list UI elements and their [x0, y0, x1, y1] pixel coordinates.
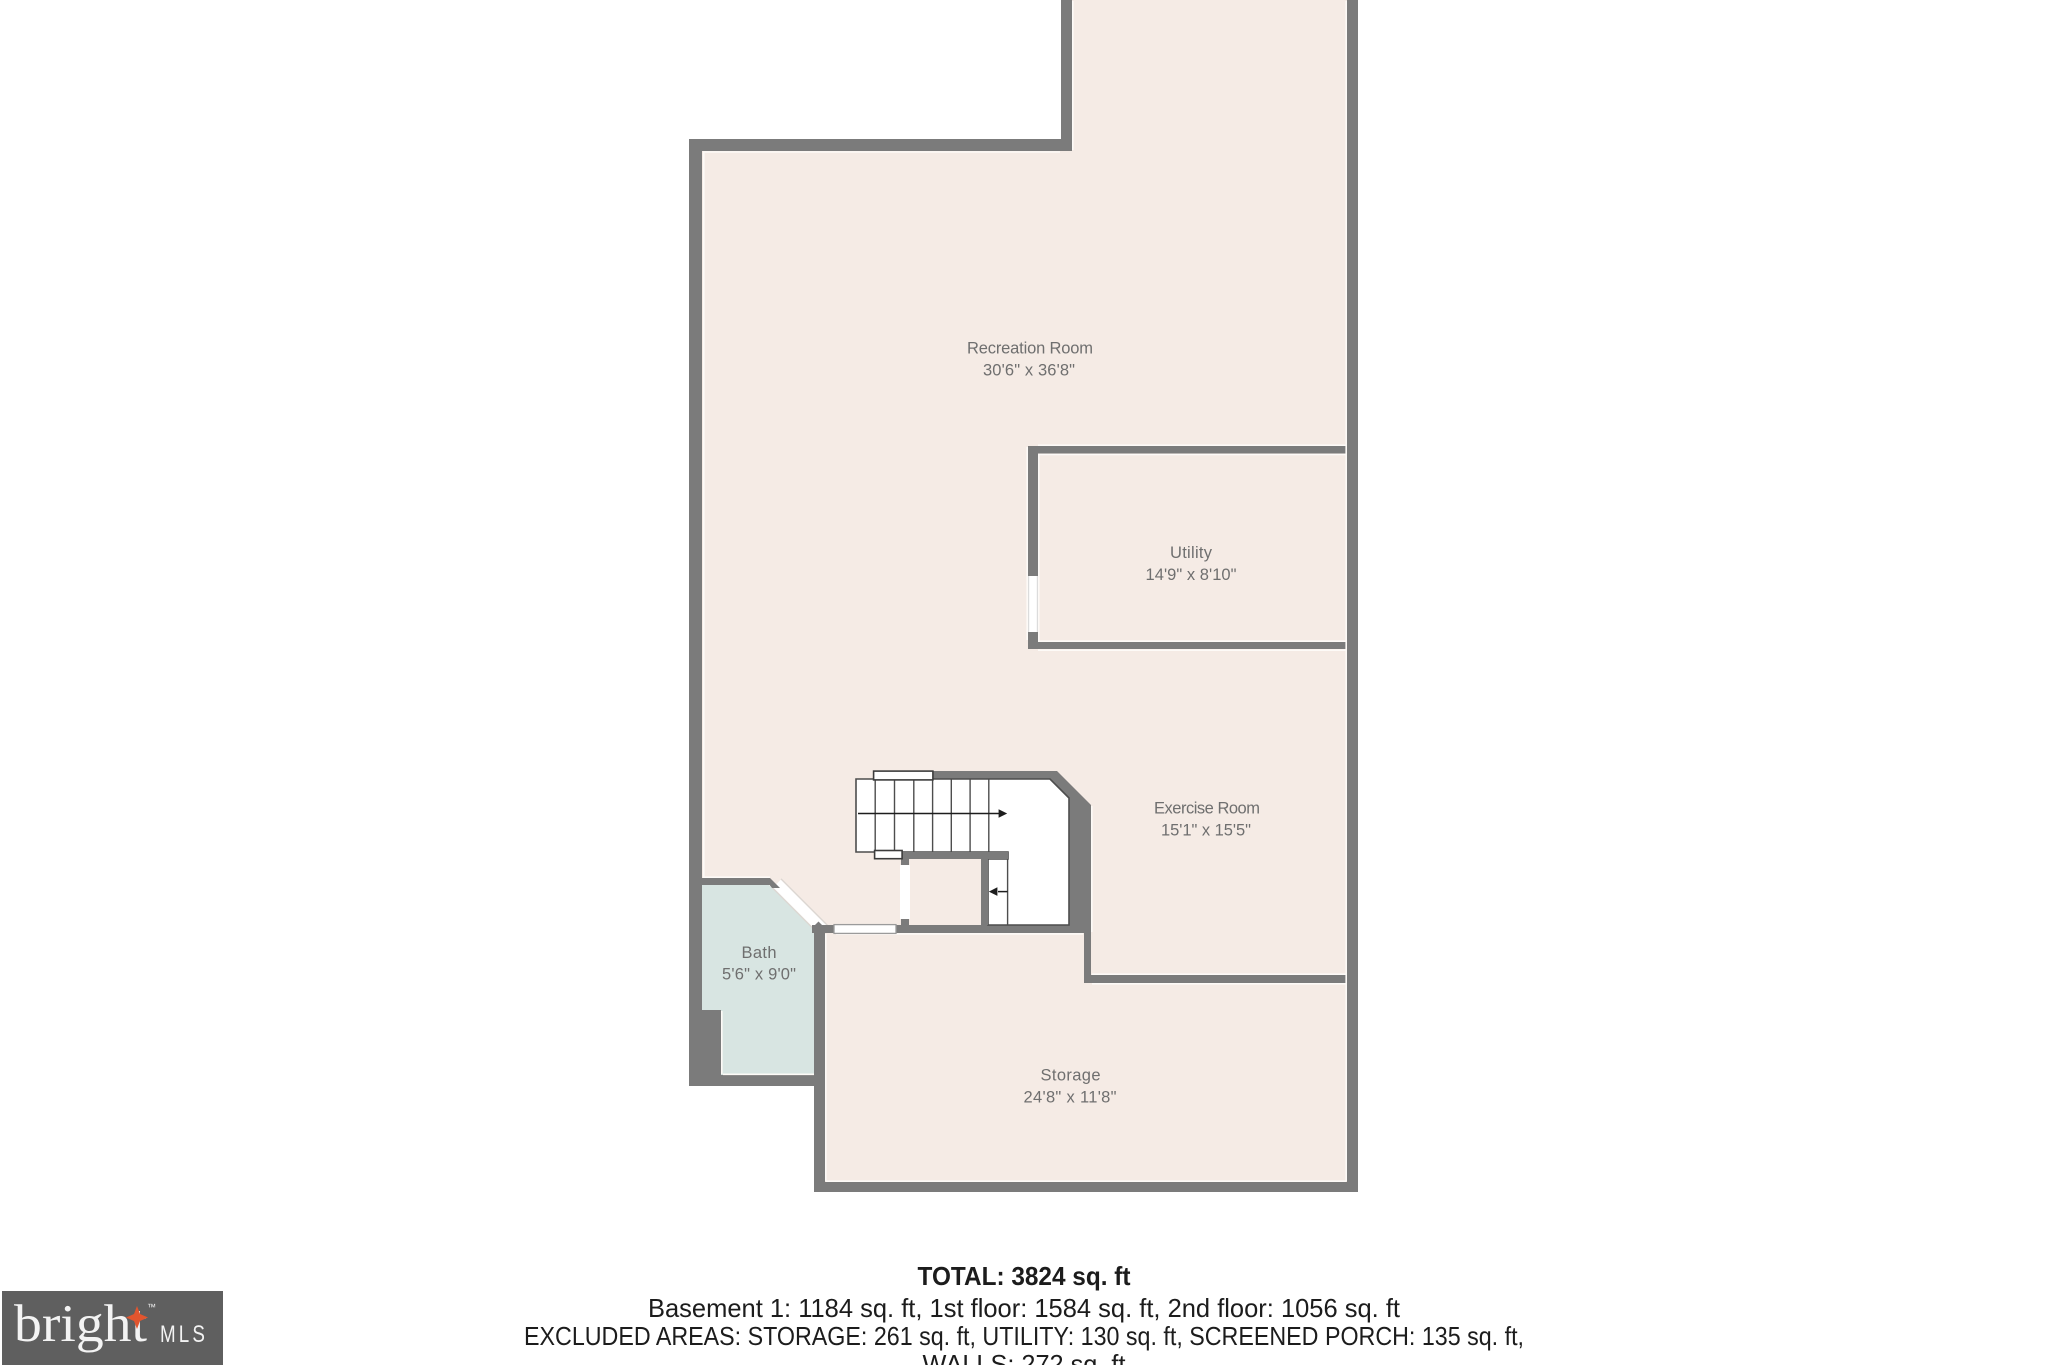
svg-text:™: ™	[147, 1302, 156, 1312]
svg-text:Utility: Utility	[1170, 544, 1213, 562]
svg-text:Recreation Room: Recreation Room	[967, 340, 1093, 358]
svg-text:5'6" x 9'0": 5'6" x 9'0"	[722, 966, 796, 984]
svg-text:30'6" x 36'8": 30'6" x 36'8"	[983, 362, 1075, 380]
svg-text:14'9" x 8'10": 14'9" x 8'10"	[1146, 566, 1237, 584]
svg-text:Basement 1: 1184 sq. ft, 1st f: Basement 1: 1184 sq. ft, 1st floor: 1584…	[648, 1293, 1401, 1323]
svg-text:Exercise Room: Exercise Room	[1154, 799, 1260, 817]
svg-text:TOTAL: 3824 sq. ft: TOTAL: 3824 sq. ft	[918, 1261, 1131, 1291]
svg-text:bright: bright	[14, 1295, 147, 1353]
svg-text:Bath: Bath	[742, 944, 777, 962]
svg-text:MLS: MLS	[160, 1321, 208, 1348]
svg-text:24'8" x 11'8": 24'8" x 11'8"	[1024, 1089, 1117, 1107]
svg-text:15'1" x 15'5": 15'1" x 15'5"	[1161, 822, 1251, 840]
svg-text:Storage: Storage	[1041, 1067, 1101, 1085]
svg-text:WALLS: 272 sq. ft: WALLS: 272 sq. ft	[923, 1349, 1127, 1365]
svg-text:EXCLUDED AREAS: STORAGE: 261 s: EXCLUDED AREAS: STORAGE: 261 sq. ft, UTI…	[524, 1321, 1524, 1351]
